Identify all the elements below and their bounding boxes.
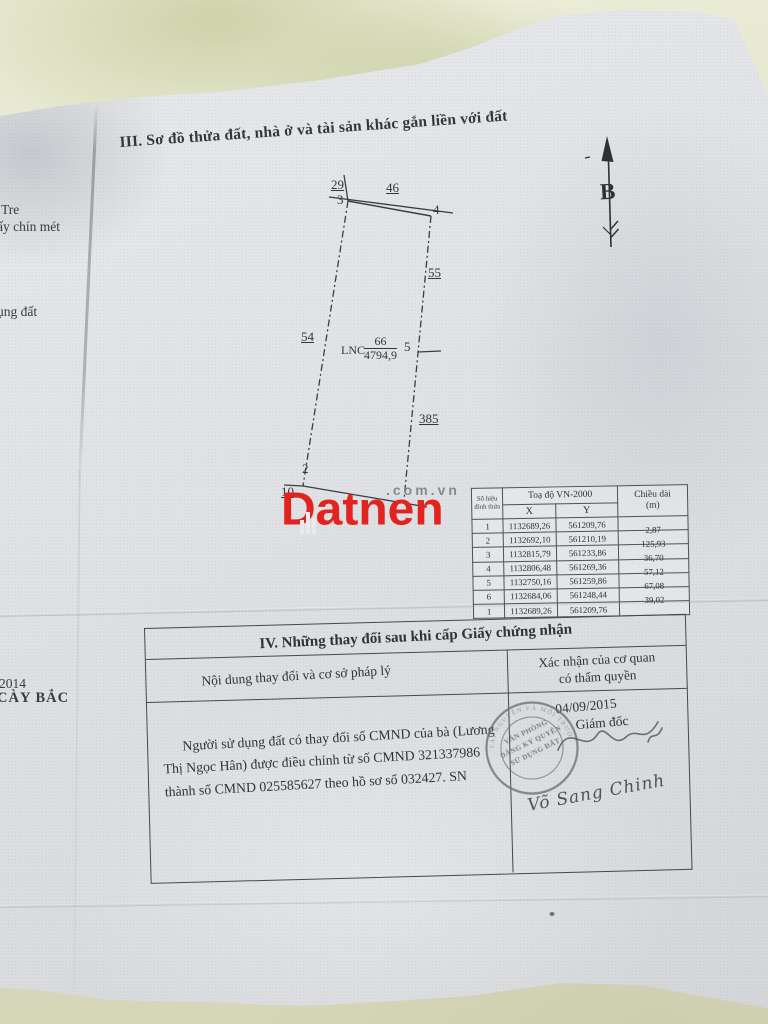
- section4-col2-header-line1: Xác nhận của cơ quan: [538, 649, 655, 670]
- land-use-code: LNC: [341, 343, 365, 358]
- photo-scene: Tre ấy chín mét ụng đất 2014 CÀY BẮC III…: [0, 0, 768, 1024]
- coord-system-header: Toạ độ VN-2000: [503, 486, 618, 505]
- parcel-area: 4794,9: [364, 348, 397, 362]
- coord-x-header: X: [503, 504, 556, 519]
- neighbor-parcel-55: 55: [428, 266, 441, 279]
- coord-cell-y: 561269,36: [556, 559, 619, 574]
- coord-vertex-header-line2: đỉnh thửa: [474, 503, 500, 510]
- edge-fragment-2: ấy chín mét: [0, 219, 60, 235]
- coord-cell-x: 1132689,26: [505, 603, 558, 618]
- coord-vertex-header: Số hiệu đỉnh thửa: [471, 488, 503, 520]
- signature-icon: [552, 708, 672, 768]
- coord-cell-y: 561248,44: [557, 588, 620, 603]
- fold-crease-vertical-lower: [73, 470, 80, 990]
- coord-length-header: Chiều dài (m): [617, 485, 687, 517]
- parcel-number: 66: [364, 335, 397, 349]
- fold-crease-horizontal-2: [0, 894, 768, 908]
- neighbor-parcel-385: 385: [419, 412, 439, 425]
- document-paper: Tre ấy chín mét ụng đất 2014 CÀY BẮC III…: [0, 0, 768, 1024]
- neighbor-parcel-46: 46: [386, 181, 399, 194]
- section4-col2-header: Xác nhận của cơ quan có thẩm quyền: [508, 647, 686, 690]
- coord-cell-id: 1: [472, 519, 503, 534]
- coord-cell-y: 561233,86: [556, 545, 619, 560]
- coordinate-table: Số hiệu đỉnh thửa Toạ độ VN-2000 Chiều d…: [471, 484, 690, 619]
- coord-cell-x: 1132692,10: [503, 532, 556, 547]
- coord-cell-id: 3: [472, 547, 503, 562]
- coord-cell-x: 1132684,06: [504, 589, 557, 604]
- coord-cell-id: 2: [472, 533, 503, 548]
- vertex-4-label: 4: [433, 203, 440, 216]
- coord-cell-x: 1132806,48: [504, 560, 557, 575]
- coord-cell-x: 1132750,16: [504, 575, 557, 590]
- coord-cell-id: 6: [473, 590, 504, 605]
- neighbor-parcel-54: 54: [301, 330, 314, 343]
- section3-title: III. Sơ đồ thửa đất, nhà ở và tài sản kh…: [119, 102, 589, 152]
- section4-title: IV. Những thay đổi sau khi cấp Giấy chứn…: [259, 621, 572, 653]
- coord-y-header: Y: [555, 503, 618, 518]
- coord-cell-id: 1: [473, 604, 504, 619]
- coord-cell-y: 561259,86: [557, 574, 620, 589]
- coord-cell-id: 5: [473, 576, 504, 591]
- section4-col2-header-line2: có thẩm quyền: [558, 667, 636, 686]
- vertex-3-label: 3: [337, 193, 344, 206]
- coord-length-header-line2: (m): [646, 501, 660, 511]
- neighbor-parcel-29: 29: [331, 178, 344, 191]
- coord-cell-len: 2,87: [618, 516, 688, 531]
- parcel-number-area: 664794,9: [364, 335, 397, 362]
- coord-cell-x: 1132689,26: [503, 518, 556, 533]
- edge-fragment-5: CÀY BẮC: [0, 690, 69, 707]
- north-label: B: [599, 179, 616, 206]
- watermark-building-icon: [297, 508, 319, 534]
- edge-fragment-3: ụng đất: [0, 304, 37, 320]
- coord-cell-y: 561209,76: [556, 517, 619, 532]
- coord-vertex-header-line1: Số hiệu: [477, 495, 498, 502]
- section4-col1-header: Nội dung thay đổi và cơ sở pháp lý: [201, 663, 391, 690]
- coord-cell-y: 561210,19: [556, 531, 619, 546]
- coord-cell-x: 1132815,79: [504, 546, 557, 561]
- coord-length-header-line1: Chiều dài: [634, 489, 671, 500]
- fold-crease-vertical: [78, 104, 98, 489]
- vertex-5-label: 5: [404, 340, 411, 353]
- section4-change-content: Người sử dụng đất có thay đổi số CMND củ…: [162, 718, 507, 803]
- coord-cell-id: 4: [473, 561, 504, 576]
- edge-fragment-1: Tre: [1, 202, 19, 218]
- vertex-2-label: 2: [302, 462, 309, 475]
- ink-speck: [548, 912, 556, 916]
